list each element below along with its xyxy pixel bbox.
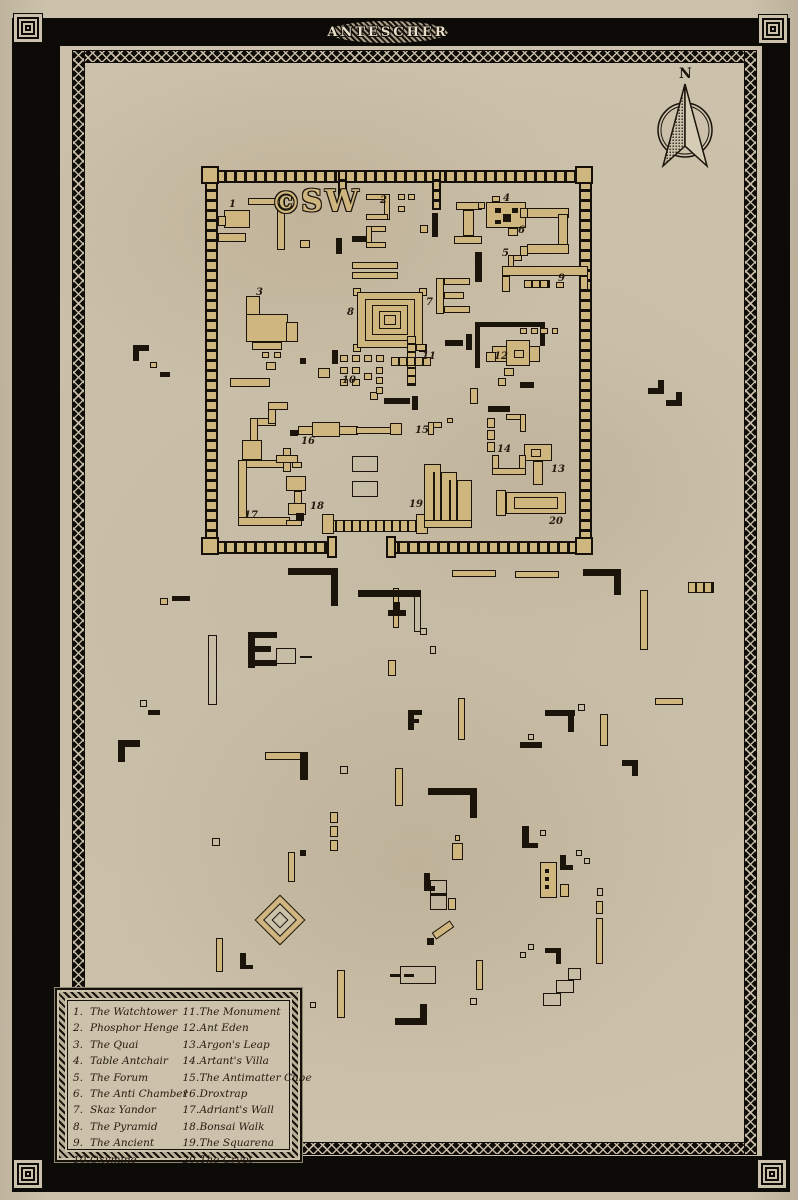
ruin xyxy=(454,236,482,244)
ruin xyxy=(470,998,477,1005)
building xyxy=(424,520,472,528)
ruin xyxy=(358,590,420,597)
ruin xyxy=(475,322,480,368)
ruin xyxy=(640,590,648,650)
ruin xyxy=(140,700,147,707)
ruin xyxy=(432,920,455,939)
legend-item-number: 10. xyxy=(73,1152,90,1168)
building-number: 9 xyxy=(558,274,565,284)
building xyxy=(447,418,453,423)
ruin xyxy=(655,698,683,705)
building-number: 11 xyxy=(422,352,436,362)
ruin xyxy=(498,378,506,386)
legend-box: 1.The Watchtower2.Phosphor Henge3.The Qu… xyxy=(55,988,302,1162)
building xyxy=(366,214,388,220)
ruin xyxy=(632,764,638,776)
building xyxy=(520,208,528,218)
legend-item-name: Artant's Villa xyxy=(200,1055,269,1067)
building xyxy=(356,427,394,434)
building xyxy=(242,440,262,460)
ruin xyxy=(337,970,345,1018)
legend-item-number: 2. xyxy=(73,1020,90,1036)
city-wall xyxy=(205,170,592,183)
building xyxy=(508,228,518,236)
legend-item: 3.The Quai xyxy=(73,1037,183,1053)
ruin xyxy=(545,885,549,889)
building xyxy=(340,367,348,374)
ruin xyxy=(475,252,482,282)
building xyxy=(504,368,514,376)
legend-item-number: 17. xyxy=(183,1102,200,1118)
ruin xyxy=(488,406,510,412)
ruin xyxy=(133,345,139,361)
legend-item-number: 14. xyxy=(183,1053,200,1069)
legend-item: 17.Adriant's Wall xyxy=(183,1102,293,1118)
ruin xyxy=(452,843,463,860)
legend-item: 7.Skaz Yandor xyxy=(73,1102,183,1118)
legend-item: 20.The Crypt xyxy=(183,1152,293,1168)
building xyxy=(502,276,510,292)
building xyxy=(218,216,226,226)
antescher-map-page: ANTESCHER N 1234567891011121314151617181… xyxy=(0,0,798,1200)
ruin xyxy=(540,328,548,334)
legend-item: 19.The Squarena xyxy=(183,1135,293,1151)
ruin xyxy=(216,938,223,972)
ruin xyxy=(266,362,276,370)
ruin xyxy=(458,698,465,740)
ruin xyxy=(540,830,546,836)
ruin xyxy=(150,362,157,368)
building-number: 3 xyxy=(256,288,263,298)
ruin xyxy=(322,514,334,534)
building xyxy=(492,468,526,475)
ruin xyxy=(352,456,378,472)
ruin xyxy=(328,520,420,532)
city-wall-tower xyxy=(575,166,593,184)
legend-item-name: The Antimatter Cube xyxy=(200,1072,312,1084)
building xyxy=(286,476,306,491)
building-number: 15 xyxy=(415,426,429,436)
legend-item-name: The Quai xyxy=(90,1039,138,1051)
ruin xyxy=(262,352,269,358)
ruin xyxy=(212,838,220,846)
ruin xyxy=(545,869,549,873)
building xyxy=(224,210,250,228)
ruin xyxy=(288,852,295,882)
legend-item-name: The Crypt xyxy=(200,1154,253,1166)
ruin xyxy=(427,938,434,945)
ruin xyxy=(388,660,396,676)
ruin xyxy=(400,966,436,984)
building xyxy=(376,387,383,394)
legend-item: 15.The Antimatter Cube xyxy=(183,1070,293,1086)
legend-item: 18.Bonsai Walk xyxy=(183,1119,293,1135)
ruin xyxy=(230,378,270,387)
legend-item-name: The Ancient xyxy=(90,1137,154,1149)
ruin xyxy=(331,568,338,606)
building xyxy=(364,373,372,380)
legend-item-number: 7. xyxy=(73,1102,90,1118)
building-number: 18 xyxy=(310,502,324,512)
building xyxy=(332,350,338,364)
building xyxy=(487,430,495,440)
ruin xyxy=(470,388,478,404)
building xyxy=(384,315,396,325)
building xyxy=(376,367,383,374)
legend-item-name: The Pyramid xyxy=(90,1121,158,1133)
ruin xyxy=(330,812,338,823)
city-wall-tower xyxy=(575,537,593,555)
building-number: 10 xyxy=(342,376,356,386)
ruin xyxy=(520,742,542,748)
ruin xyxy=(300,752,308,780)
ruin xyxy=(420,225,428,233)
building xyxy=(312,422,340,437)
legend-item-name: Table Antchair xyxy=(90,1055,168,1067)
ruin xyxy=(597,888,603,896)
building xyxy=(218,233,246,242)
city-wall xyxy=(579,170,592,553)
ruin xyxy=(445,340,463,346)
ruin xyxy=(248,632,255,668)
ruin xyxy=(476,960,483,990)
building xyxy=(352,355,360,362)
legend-item: 14.Artant's Villa xyxy=(183,1053,293,1069)
legend-item-number: 11. xyxy=(183,1004,200,1020)
ruin xyxy=(352,272,398,279)
ruin xyxy=(300,358,306,364)
building xyxy=(487,418,495,428)
building xyxy=(268,402,288,410)
ruin xyxy=(556,948,561,964)
building xyxy=(364,355,372,362)
ruin xyxy=(560,884,569,897)
building xyxy=(520,328,527,334)
legend-item-name: Argon's Leap xyxy=(200,1039,270,1051)
ruin xyxy=(274,352,281,358)
legend-columns: 1.The Watchtower2.Phosphor Henge3.The Qu… xyxy=(73,1004,292,1152)
city-wall xyxy=(205,541,333,554)
ruin xyxy=(540,322,545,346)
signature-glyph: W xyxy=(325,187,359,217)
legend-item-name: Ant Eden xyxy=(200,1022,249,1034)
city-wall xyxy=(205,170,218,553)
city-wall-tower xyxy=(386,536,396,558)
ruin xyxy=(528,734,534,740)
building xyxy=(514,350,524,358)
legend-item-number: 16. xyxy=(183,1086,200,1102)
building-number: 1 xyxy=(229,200,236,210)
building xyxy=(531,449,541,457)
building xyxy=(252,342,282,350)
legend-item-number: 5. xyxy=(73,1070,90,1086)
legend-item-name: The Watchtower xyxy=(90,1006,177,1018)
ruin xyxy=(576,850,582,856)
legend-item-number: 12. xyxy=(183,1020,200,1036)
legend-item: 1.The Watchtower xyxy=(73,1004,183,1020)
building xyxy=(492,196,500,202)
building xyxy=(502,266,588,276)
city-wall xyxy=(388,541,592,554)
ruin xyxy=(432,213,438,237)
legend-item: 10.Oxymine xyxy=(73,1152,183,1168)
building xyxy=(290,430,298,436)
building xyxy=(524,280,550,288)
building xyxy=(512,208,518,213)
ruin xyxy=(520,952,526,958)
ruin xyxy=(543,993,561,1006)
ruin xyxy=(448,898,456,910)
ruin xyxy=(596,918,603,964)
ruin xyxy=(583,569,617,576)
legend-item-number: 9. xyxy=(73,1135,90,1151)
ruin xyxy=(208,635,217,705)
building-number: 8 xyxy=(347,308,354,318)
legend-item-number: 4. xyxy=(73,1053,90,1069)
building xyxy=(352,367,360,374)
building xyxy=(520,246,528,256)
ruin xyxy=(452,570,496,577)
legend-item: 12.Ant Eden xyxy=(183,1020,293,1036)
ruin xyxy=(352,481,378,497)
legend-item-number: 20. xyxy=(183,1152,200,1168)
ruin xyxy=(255,646,271,652)
ruin xyxy=(545,877,549,881)
building xyxy=(487,442,495,452)
building xyxy=(495,208,501,213)
building-number: 2 xyxy=(380,196,387,206)
building-number: 16 xyxy=(301,437,315,447)
ruin xyxy=(515,571,559,578)
building xyxy=(533,461,543,485)
legend-column-2: 11.The Monument12.Ant Eden13.Argon's Lea… xyxy=(183,1004,293,1152)
signature-glyph: S xyxy=(301,187,323,217)
legend-item-number: 8. xyxy=(73,1119,90,1135)
building xyxy=(376,377,383,384)
ruin xyxy=(596,901,603,914)
ruin xyxy=(568,968,581,980)
legend-item-name: Skaz Yandor xyxy=(90,1104,156,1116)
building xyxy=(444,306,470,313)
building xyxy=(478,202,485,209)
ruin xyxy=(466,334,472,350)
building xyxy=(531,328,538,334)
ruin xyxy=(430,893,447,896)
legend-item-name: The Anti Chamber xyxy=(90,1088,188,1100)
ruin xyxy=(420,1004,427,1020)
legend-item: 16.Droxtrap xyxy=(183,1086,293,1102)
ruin xyxy=(240,965,253,969)
building-number: 4 xyxy=(503,194,510,204)
legend-item-number: 15. xyxy=(183,1070,200,1086)
legend-item: 2.Phosphor Henge xyxy=(73,1020,183,1036)
legend-item: 8.The Pyramid xyxy=(73,1119,183,1135)
city-wall-tower xyxy=(327,536,337,558)
building xyxy=(433,472,435,520)
building-number: 19 xyxy=(409,500,423,510)
ruin xyxy=(310,1002,316,1008)
ruin xyxy=(330,840,338,851)
legend-item-number: 13. xyxy=(183,1037,200,1053)
ruin xyxy=(420,628,427,635)
ruin xyxy=(300,850,306,856)
city-wall xyxy=(432,170,441,210)
ruin xyxy=(336,238,342,254)
ruin xyxy=(118,740,125,762)
city-wall-tower xyxy=(201,166,219,184)
building-number: 13 xyxy=(551,465,565,475)
building-number: 12 xyxy=(494,352,508,362)
building xyxy=(527,244,569,254)
ruin xyxy=(330,826,338,837)
ruin xyxy=(255,660,277,666)
legend-item-number: 3. xyxy=(73,1037,90,1053)
legend-item: 13.Argon's Leap xyxy=(183,1037,293,1053)
building-number: 17 xyxy=(244,511,258,521)
signature-glyph: © xyxy=(271,189,301,219)
legend-item-name: Oxymine xyxy=(90,1154,137,1166)
legend-item-name: Adriant's Wall xyxy=(200,1104,274,1116)
building xyxy=(496,490,506,516)
ruin xyxy=(688,582,714,593)
legend-column-1: 1.The Watchtower2.Phosphor Henge3.The Qu… xyxy=(73,1004,183,1152)
ruin xyxy=(394,602,400,616)
legend-item-name: Droxtrap xyxy=(200,1088,248,1100)
building-number: 14 xyxy=(497,445,511,455)
legend-item-name: The Squarena xyxy=(200,1137,275,1149)
building xyxy=(398,194,405,200)
legend-item-number: 6. xyxy=(73,1086,90,1102)
ruin xyxy=(148,710,160,715)
ruin xyxy=(395,768,403,806)
ruin xyxy=(475,322,545,327)
legend-item: 11.The Monument xyxy=(183,1004,293,1020)
legend-item-number: 18. xyxy=(183,1119,200,1135)
ruin xyxy=(600,714,608,746)
building xyxy=(514,497,558,509)
ruin xyxy=(384,398,410,404)
ruin xyxy=(614,569,621,595)
building xyxy=(366,242,386,248)
ruin xyxy=(352,262,398,269)
ruin xyxy=(408,710,422,715)
building xyxy=(444,292,464,299)
building xyxy=(292,462,302,468)
ruin xyxy=(522,843,538,848)
legend-item-name: The Forum xyxy=(90,1072,148,1084)
legend-item-name: The Monument xyxy=(200,1006,281,1018)
building xyxy=(398,206,405,212)
building xyxy=(376,355,384,362)
ruin xyxy=(463,210,474,236)
ruin xyxy=(428,788,470,795)
legend-item: 9.The Ancient xyxy=(73,1135,183,1151)
building xyxy=(495,220,501,224)
building-number: 7 xyxy=(426,298,433,308)
building xyxy=(416,344,426,351)
ruin xyxy=(560,865,573,870)
legend-item: 5.The Forum xyxy=(73,1070,183,1086)
ruin xyxy=(276,648,296,664)
ruin xyxy=(318,368,330,378)
ruin xyxy=(412,396,418,410)
ruin xyxy=(520,382,534,388)
ruin xyxy=(584,858,590,864)
ruin xyxy=(455,835,460,841)
ruin xyxy=(390,974,400,977)
ruin xyxy=(552,328,558,334)
building xyxy=(340,355,348,362)
building-number: 6 xyxy=(518,226,525,236)
building xyxy=(286,322,298,342)
ruin xyxy=(676,392,682,404)
ruin xyxy=(658,380,664,394)
building xyxy=(436,278,444,314)
legend-item-name: Phosphor Henge xyxy=(90,1022,179,1034)
building xyxy=(503,214,511,222)
building xyxy=(390,423,402,435)
ruin xyxy=(556,980,574,993)
ruin xyxy=(414,590,421,632)
legend-item: 6.The Anti Chamber xyxy=(73,1086,183,1102)
legend-item-number: 19. xyxy=(183,1135,200,1151)
ruin xyxy=(172,596,190,601)
ruin xyxy=(255,632,277,638)
building xyxy=(444,278,470,285)
legend-item-name: Bonsai Walk xyxy=(200,1121,265,1133)
ruin xyxy=(568,710,574,732)
ruin xyxy=(300,240,310,248)
ruin xyxy=(300,656,312,658)
ruin xyxy=(470,788,477,818)
ruin xyxy=(578,704,585,711)
building xyxy=(580,276,588,290)
ruin xyxy=(528,944,534,950)
ruin xyxy=(160,598,168,605)
ruin xyxy=(430,646,436,654)
building-number: 5 xyxy=(502,249,509,259)
city-wall-tower xyxy=(201,537,219,555)
ruin xyxy=(340,766,348,774)
building xyxy=(296,513,304,521)
ruin xyxy=(288,568,336,575)
ruin xyxy=(160,372,170,377)
legend-item: 4.Table Antchair xyxy=(73,1053,183,1069)
ruin xyxy=(408,719,419,723)
building xyxy=(520,414,526,432)
legend-item-number: 1. xyxy=(73,1004,90,1020)
building xyxy=(246,314,288,342)
building-number: 20 xyxy=(549,517,563,527)
building xyxy=(449,480,451,520)
building xyxy=(408,194,415,200)
